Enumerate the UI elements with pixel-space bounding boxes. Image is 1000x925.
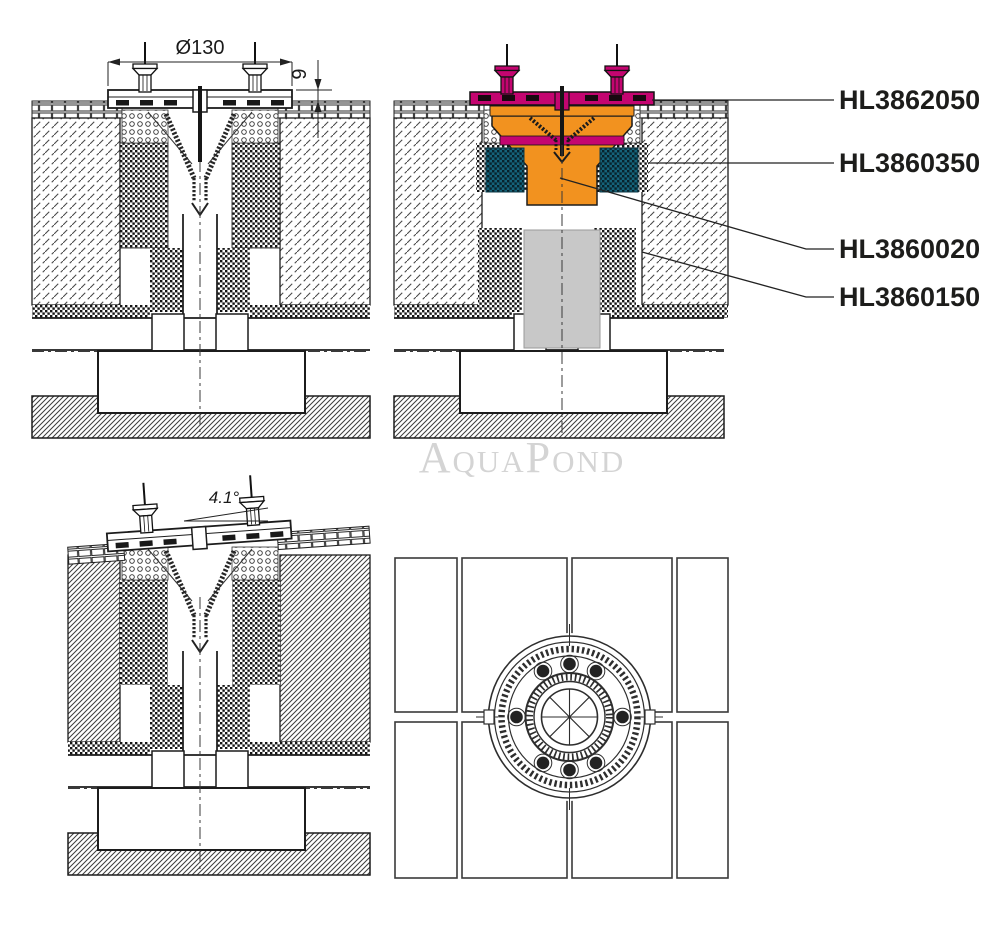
part-label-body: HL3860020 xyxy=(839,234,980,264)
dimension-diameter: Ø130 xyxy=(108,37,292,86)
concrete-block xyxy=(642,118,728,305)
part-label-seal: HL3860350 xyxy=(839,148,980,178)
insulation-column xyxy=(120,580,168,685)
concrete-block xyxy=(280,555,370,742)
drawing-canvas: Ø130 9 xyxy=(0,0,1000,925)
technical-drawing-page: Ø130 9 xyxy=(0,0,1000,925)
concrete-block xyxy=(394,118,482,305)
insulation-band xyxy=(612,305,728,318)
side-lug xyxy=(645,710,655,724)
pipe-coupling xyxy=(98,788,305,850)
fixing-screw-icon xyxy=(133,42,157,92)
watermark-text: AquaPond xyxy=(419,433,626,482)
insulation-column xyxy=(232,143,280,248)
concrete-block xyxy=(68,555,120,742)
insulation-column xyxy=(478,228,522,312)
insulation-column xyxy=(232,580,280,685)
concrete-block xyxy=(32,118,120,305)
section-view-tilted: 4.1° xyxy=(64,467,371,875)
dim-diameter-text: Ø130 xyxy=(176,37,225,59)
part-label-extension: HL3860150 xyxy=(839,282,980,312)
section-view-dimensioned: Ø130 9 xyxy=(32,37,370,438)
concrete-block xyxy=(280,118,370,305)
top-view xyxy=(395,558,728,878)
seal-teal xyxy=(600,148,638,192)
section-view-colored xyxy=(394,44,728,438)
part-label-covering: HL3862050 xyxy=(839,85,980,115)
seal-teal xyxy=(486,148,524,192)
pipe-sleeve xyxy=(216,314,248,353)
pipe-coupling xyxy=(460,351,667,413)
side-lug xyxy=(484,710,494,724)
insulation-band xyxy=(32,305,150,318)
insulation-band xyxy=(394,305,512,318)
pipe-sleeve xyxy=(152,751,184,790)
fixing-screw-icon xyxy=(495,44,519,94)
pipe-sleeve xyxy=(152,314,184,353)
insulation-column xyxy=(120,143,168,248)
fixing-screw-icon xyxy=(131,482,158,534)
drainage-mat xyxy=(122,547,168,580)
insulation-band xyxy=(250,305,370,318)
pipe-sleeve xyxy=(216,751,248,790)
dim-angle-text: 4.1° xyxy=(209,488,240,507)
fixing-screw-icon xyxy=(243,42,267,92)
drainage-mat xyxy=(232,547,278,580)
fixing-screw-icon xyxy=(238,474,265,526)
drainage-mat xyxy=(232,110,278,143)
center-screw-pin xyxy=(198,86,202,162)
pipe-coupling xyxy=(98,351,305,413)
insulation-column xyxy=(150,248,183,312)
fixing-screw-icon xyxy=(605,44,629,94)
drainage-mat xyxy=(122,110,168,143)
insulation-column xyxy=(217,248,250,312)
dim-height-text: 9 xyxy=(289,68,311,79)
outlet-spokes xyxy=(542,689,598,745)
